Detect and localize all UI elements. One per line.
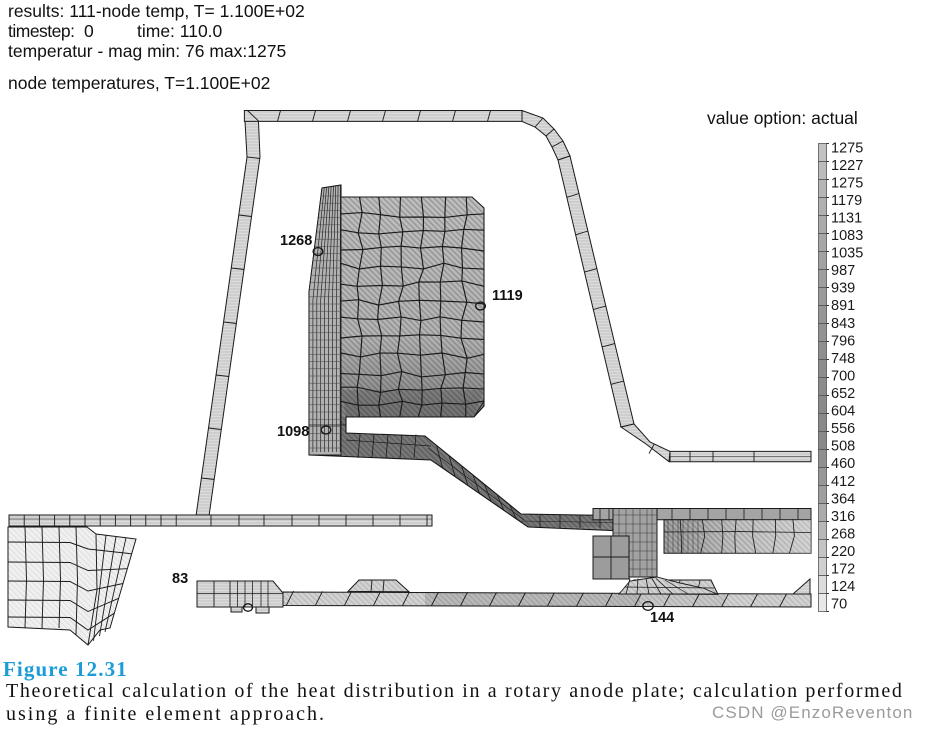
- svg-text:172: 172: [831, 562, 855, 578]
- svg-text:843: 843: [831, 316, 855, 332]
- svg-text:748: 748: [831, 351, 855, 367]
- svg-text:70: 70: [831, 597, 847, 613]
- svg-text:124: 124: [831, 579, 855, 595]
- svg-text:1275: 1275: [831, 140, 863, 156]
- svg-text:1227: 1227: [831, 158, 863, 174]
- svg-text:220: 220: [831, 544, 855, 560]
- svg-text:1083: 1083: [831, 228, 863, 244]
- svg-text:556: 556: [831, 421, 855, 437]
- svg-text:652: 652: [831, 386, 855, 402]
- svg-text:316: 316: [831, 509, 855, 525]
- svg-text:891: 891: [831, 298, 855, 314]
- svg-text:1035: 1035: [831, 246, 863, 262]
- svg-text:1131: 1131: [831, 211, 862, 227]
- svg-text:987: 987: [831, 263, 855, 279]
- svg-text:412: 412: [831, 474, 855, 490]
- svg-text:508: 508: [831, 439, 855, 455]
- svg-text:700: 700: [831, 369, 855, 385]
- svg-text:604: 604: [831, 404, 855, 420]
- svg-text:939: 939: [831, 281, 855, 297]
- svg-text:1275: 1275: [831, 175, 863, 191]
- svg-text:796: 796: [831, 333, 855, 349]
- svg-text:460: 460: [831, 456, 855, 472]
- svg-text:268: 268: [831, 526, 855, 542]
- svg-text:364: 364: [831, 491, 855, 507]
- svg-text:1179: 1179: [831, 193, 862, 209]
